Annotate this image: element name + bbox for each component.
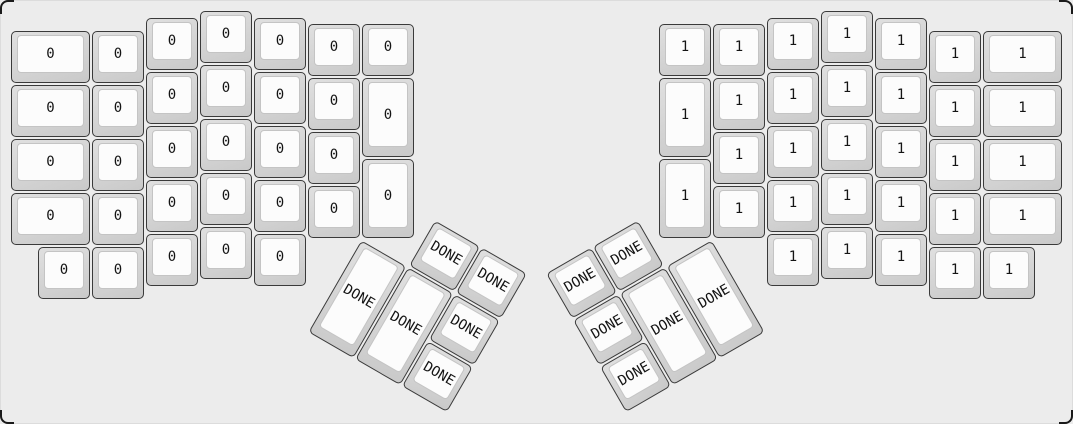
keycap-top-surface: 1 — [665, 28, 705, 66]
keycap-top-surface: 1 — [989, 143, 1056, 181]
keycap-label: 1 — [843, 243, 851, 257]
keycap-label: 0 — [330, 94, 338, 108]
keycap-label: 1 — [897, 142, 905, 156]
keycap-top-surface: 0 — [98, 251, 138, 289]
keycap-top-surface: 0 — [98, 143, 138, 181]
keycap-label: 1 — [1018, 209, 1026, 223]
keycap-top-surface: 1 — [827, 177, 867, 215]
keycap-top-surface: 0 — [152, 130, 192, 168]
keycap-label: DONE — [696, 282, 732, 311]
keycap-label: 1 — [951, 101, 959, 115]
keycap[interactable]: 0 — [254, 234, 306, 286]
keycap[interactable]: 0 — [11, 31, 90, 83]
keycap-label: DONE — [616, 360, 652, 389]
keycap-top-surface: 1 — [773, 76, 813, 114]
keycap[interactable]: 0 — [146, 126, 198, 178]
keycap-label: DONE — [475, 266, 511, 295]
keycap-label: 0 — [330, 148, 338, 162]
keycap[interactable]: 0 — [92, 139, 144, 191]
keycap-label: 1 — [681, 40, 689, 54]
keycap-label: 1 — [789, 34, 797, 48]
keycap-label: 0 — [114, 209, 122, 223]
keycap-label: 1 — [951, 155, 959, 169]
keycap-top-surface: 0 — [206, 231, 246, 269]
keycap-top-surface: 1 — [665, 82, 705, 147]
keycap[interactable]: 0 — [38, 247, 90, 299]
keycap-label: 1 — [735, 40, 743, 54]
keycap-label: DONE — [589, 313, 625, 342]
keycap-top-surface: 0 — [260, 184, 300, 222]
keycap-top-surface: 1 — [881, 184, 921, 222]
keycap[interactable]: 1 — [983, 85, 1062, 137]
keycap-label: 0 — [168, 250, 176, 264]
keycap[interactable]: 0 — [92, 31, 144, 83]
keycap-label: 0 — [276, 88, 284, 102]
keycap-top-surface: DONE — [600, 227, 654, 280]
keycap[interactable]: 0 — [11, 139, 90, 191]
keycap[interactable]: 0 — [254, 126, 306, 178]
case-corner-bottom-left — [0, 410, 14, 424]
keycap-label: 0 — [222, 81, 230, 95]
keycap-label: 1 — [951, 47, 959, 61]
keycap-label: 1 — [789, 250, 797, 264]
keycap-top-surface: 0 — [17, 35, 84, 73]
keycap-top-surface: 0 — [260, 130, 300, 168]
keycap[interactable]: 1 — [821, 11, 873, 63]
keycap-label: 0 — [168, 196, 176, 210]
keycap-label: DONE — [428, 239, 464, 268]
keycap-label: 0 — [276, 250, 284, 264]
keycap[interactable]: 0 — [146, 234, 198, 286]
keycap-top-surface: 1 — [935, 35, 975, 73]
keycap-label: 0 — [46, 47, 54, 61]
keycap-label: 0 — [276, 196, 284, 210]
keycap-label: 0 — [330, 40, 338, 54]
keycap[interactable]: 1 — [929, 247, 981, 299]
keycap-top-surface: 0 — [17, 89, 84, 127]
keycap-label: 1 — [789, 88, 797, 102]
keycap[interactable]: 1 — [983, 139, 1062, 191]
keycap-label: DONE — [562, 266, 598, 295]
keycap[interactable]: 0 — [254, 72, 306, 124]
keycap[interactable]: 1 — [821, 173, 873, 225]
keycap[interactable]: 1 — [821, 65, 873, 117]
keycap-top-surface: 0 — [314, 28, 354, 66]
keycap-label: 0 — [222, 27, 230, 41]
keycap-label: 1 — [1018, 155, 1026, 169]
keycap[interactable]: 0 — [362, 24, 414, 76]
keycap[interactable]: 0 — [200, 65, 252, 117]
keycap-top-surface: 0 — [152, 184, 192, 222]
keycap-label: 0 — [168, 88, 176, 102]
keycap[interactable]: 0 — [200, 227, 252, 279]
keycap-label: DONE — [421, 360, 457, 389]
keycap-label: DONE — [649, 309, 685, 338]
keycap-top-surface: 1 — [773, 238, 813, 276]
keycap-top-surface: 0 — [260, 76, 300, 114]
keycap[interactable]: 1 — [713, 186, 765, 238]
keycap-label: 0 — [222, 189, 230, 203]
keycap-label: 1 — [735, 148, 743, 162]
keycap-top-surface: 1 — [989, 197, 1056, 235]
keycap-top-surface: 0 — [368, 163, 408, 228]
keycap[interactable]: 0 — [146, 180, 198, 232]
keycap[interactable]: 0 — [92, 193, 144, 245]
keycap-top-surface: 1 — [935, 197, 975, 235]
keycap-label: 1 — [1005, 263, 1013, 277]
keycap[interactable]: 1 — [767, 18, 819, 70]
keycap-top-surface: 1 — [989, 35, 1056, 73]
case-corner-bottom-right — [1059, 410, 1073, 424]
keycap[interactable]: 0 — [200, 11, 252, 63]
keycap-top-surface: 1 — [827, 123, 867, 161]
keycap-top-surface: 1 — [989, 251, 1029, 289]
keycap-label: 1 — [843, 135, 851, 149]
keycap-label: 1 — [843, 27, 851, 41]
keycap-top-surface: 1 — [881, 238, 921, 276]
keycap-label: 0 — [168, 34, 176, 48]
keycap-top-surface: 1 — [881, 22, 921, 60]
keycap-label: 0 — [46, 101, 54, 115]
keycap[interactable]: 1 — [767, 234, 819, 286]
keycap[interactable]: 0 — [308, 132, 360, 184]
keycap-top-surface: 1 — [935, 251, 975, 289]
keycap[interactable]: 1 — [767, 72, 819, 124]
keycap[interactable]: 1 — [983, 193, 1062, 245]
keycap[interactable]: 1 — [875, 234, 927, 286]
keycap-top-surface: DONE — [466, 254, 520, 307]
keycap[interactable]: 0 — [308, 78, 360, 130]
keycap[interactable]: 1 — [983, 31, 1062, 83]
keycap[interactable]: 1 — [929, 31, 981, 83]
keycap-label: 1 — [789, 196, 797, 210]
keycap-top-surface: 1 — [719, 136, 759, 174]
keycap-label: 0 — [114, 47, 122, 61]
keycap-top-surface: 0 — [314, 136, 354, 174]
keycap-top-surface: 1 — [773, 22, 813, 60]
keycap[interactable]: 0 — [308, 186, 360, 238]
keycap-label: 0 — [46, 209, 54, 223]
keycap[interactable]: 0 — [146, 18, 198, 70]
keycap-top-surface: 0 — [314, 82, 354, 120]
keycap[interactable]: 1 — [983, 247, 1035, 299]
keycap-top-surface: 0 — [260, 238, 300, 276]
keycap-label: 1 — [735, 202, 743, 216]
keycap-label: 1 — [1018, 101, 1026, 115]
keycap-label: 1 — [897, 196, 905, 210]
keycap-label: 1 — [897, 250, 905, 264]
keycap-top-surface: DONE — [419, 227, 473, 280]
keycap[interactable]: 0 — [362, 78, 414, 157]
keycap-top-surface: 1 — [773, 130, 813, 168]
keycap-label: 0 — [114, 155, 122, 169]
keycap-label: 0 — [384, 40, 392, 54]
keycap-label: DONE — [341, 282, 377, 311]
keycap[interactable]: 1 — [713, 78, 765, 130]
keycap[interactable]: 1 — [713, 24, 765, 76]
keycap[interactable]: 1 — [659, 78, 711, 157]
keycap-label: 0 — [114, 263, 122, 277]
keycap-label: DONE — [388, 309, 424, 338]
keycap[interactable]: 0 — [362, 159, 414, 238]
keycap-top-surface: 1 — [827, 231, 867, 269]
keycap[interactable]: 1 — [929, 85, 981, 137]
keycap-top-surface: DONE — [553, 254, 607, 307]
keycap-top-surface: 1 — [719, 82, 759, 120]
keycap[interactable]: 0 — [254, 18, 306, 70]
keycap-label: 0 — [46, 155, 54, 169]
keycap-label: 0 — [222, 243, 230, 257]
keycap-label: 0 — [384, 108, 392, 122]
keycap-label: 1 — [789, 142, 797, 156]
keycap[interactable]: 0 — [92, 247, 144, 299]
keycap[interactable]: 0 — [254, 180, 306, 232]
keycap-label: DONE — [609, 239, 645, 268]
keycap[interactable]: 1 — [821, 119, 873, 171]
keycap-top-surface: 0 — [206, 69, 246, 107]
keycap[interactable]: 1 — [767, 180, 819, 232]
keycap-label: 1 — [951, 263, 959, 277]
keycap-top-surface: 0 — [152, 22, 192, 60]
keycap-label: 0 — [276, 142, 284, 156]
keycap-label: 1 — [681, 189, 689, 203]
keycap-top-surface: 1 — [773, 184, 813, 222]
keycap[interactable]: 1 — [875, 72, 927, 124]
keycap-label: 0 — [60, 263, 68, 277]
keycap[interactable]: 0 — [11, 193, 90, 245]
keycap-top-surface: 1 — [827, 15, 867, 53]
keycap-top-surface: 0 — [17, 197, 84, 235]
case-corner-top-left — [0, 0, 14, 14]
keyboard-canvas: 00000000000000000000000000000000 1111111… — [0, 0, 1073, 424]
case-corner-top-right — [1059, 0, 1073, 14]
keycap-top-surface: 0 — [152, 238, 192, 276]
keycap-top-surface: 0 — [98, 197, 138, 235]
keycap-label: 0 — [222, 135, 230, 149]
keycap-top-surface: 0 — [260, 22, 300, 60]
keycap-top-surface: 0 — [17, 143, 84, 181]
keycap[interactable]: 1 — [929, 139, 981, 191]
keycap-top-surface: 1 — [665, 163, 705, 228]
keycap-label: 0 — [384, 189, 392, 203]
keycap[interactable]: 1 — [875, 126, 927, 178]
keycap-label: 1 — [897, 34, 905, 48]
keycap-top-surface: 1 — [719, 28, 759, 66]
keycap-top-surface: 0 — [368, 82, 408, 147]
keycap-label: 0 — [330, 202, 338, 216]
keycap-label: 0 — [114, 101, 122, 115]
keycap-top-surface: 0 — [98, 35, 138, 73]
keycap-top-surface: 0 — [206, 177, 246, 215]
keycap-top-surface: 1 — [935, 143, 975, 181]
keycap-top-surface: 0 — [206, 123, 246, 161]
keycap-top-surface: 0 — [206, 15, 246, 53]
keycap[interactable]: 0 — [92, 85, 144, 137]
keycap-top-surface: 0 — [314, 190, 354, 228]
keycap-top-surface: 1 — [881, 130, 921, 168]
keycap-top-surface: 0 — [368, 28, 408, 66]
keycap[interactable]: 0 — [146, 72, 198, 124]
keycap-top-surface: 0 — [152, 76, 192, 114]
keycap[interactable]: 1 — [659, 24, 711, 76]
keycap-label: 1 — [951, 209, 959, 223]
keycap-top-surface: 1 — [989, 89, 1056, 127]
keycap-top-surface: 1 — [935, 89, 975, 127]
keycap-top-surface: 1 — [881, 76, 921, 114]
keycap-label: 1 — [681, 108, 689, 122]
keycap-label: 1 — [1018, 47, 1026, 61]
keycap[interactable]: 0 — [11, 85, 90, 137]
keycap[interactable]: 0 — [308, 24, 360, 76]
keycap-label: 1 — [843, 189, 851, 203]
keycap[interactable]: 0 — [200, 173, 252, 225]
keycap-label: 1 — [735, 94, 743, 108]
keycap-label: 1 — [897, 88, 905, 102]
keycap-top-surface: 0 — [98, 89, 138, 127]
keycap-top-surface: 1 — [719, 190, 759, 228]
keycap-label: 1 — [843, 81, 851, 95]
keycap-top-surface: 1 — [827, 69, 867, 107]
keycap-label: 0 — [276, 34, 284, 48]
keycap-label: 0 — [168, 142, 176, 156]
keycap[interactable]: 1 — [875, 180, 927, 232]
keycap-top-surface: 0 — [44, 251, 84, 289]
keycap[interactable]: 1 — [767, 126, 819, 178]
keycap[interactable]: 0 — [200, 119, 252, 171]
keycap[interactable]: 1 — [713, 132, 765, 184]
keycap[interactable]: 1 — [929, 193, 981, 245]
keycap[interactable]: 1 — [659, 159, 711, 238]
keycap[interactable]: 1 — [875, 18, 927, 70]
keycap-label: DONE — [448, 313, 484, 342]
keycap[interactable]: 1 — [821, 227, 873, 279]
